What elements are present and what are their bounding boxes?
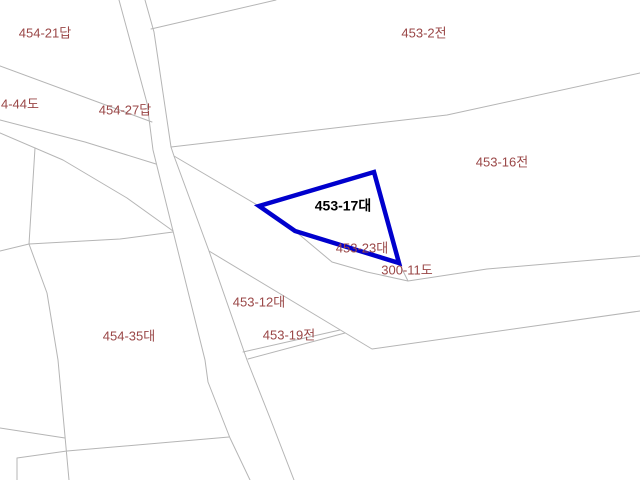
label-453-12: 453-12대	[233, 295, 285, 310]
cadastral-map[interactable]: 454-21답453-2전4-44도454-27답453-16전453-17대4…	[0, 0, 640, 480]
label-454-21: 454-21답	[19, 26, 71, 41]
label-453-19: 453-19전	[263, 328, 315, 343]
cadastral-map-viewport[interactable]: 454-21답453-2전4-44도454-27답453-16전453-17대4…	[0, 0, 640, 480]
label-300-11: 300-11도	[381, 263, 433, 278]
label-454-35: 454-35대	[103, 329, 155, 344]
label-453-2: 453-2전	[401, 26, 446, 41]
label-453-16: 453-16전	[476, 155, 528, 170]
label-454-27: 454-27답	[99, 103, 151, 118]
label-453-17: 453-17대	[315, 198, 371, 214]
label-453-23: 453-23대	[336, 241, 388, 256]
label-4-44: 4-44도	[1, 97, 39, 112]
